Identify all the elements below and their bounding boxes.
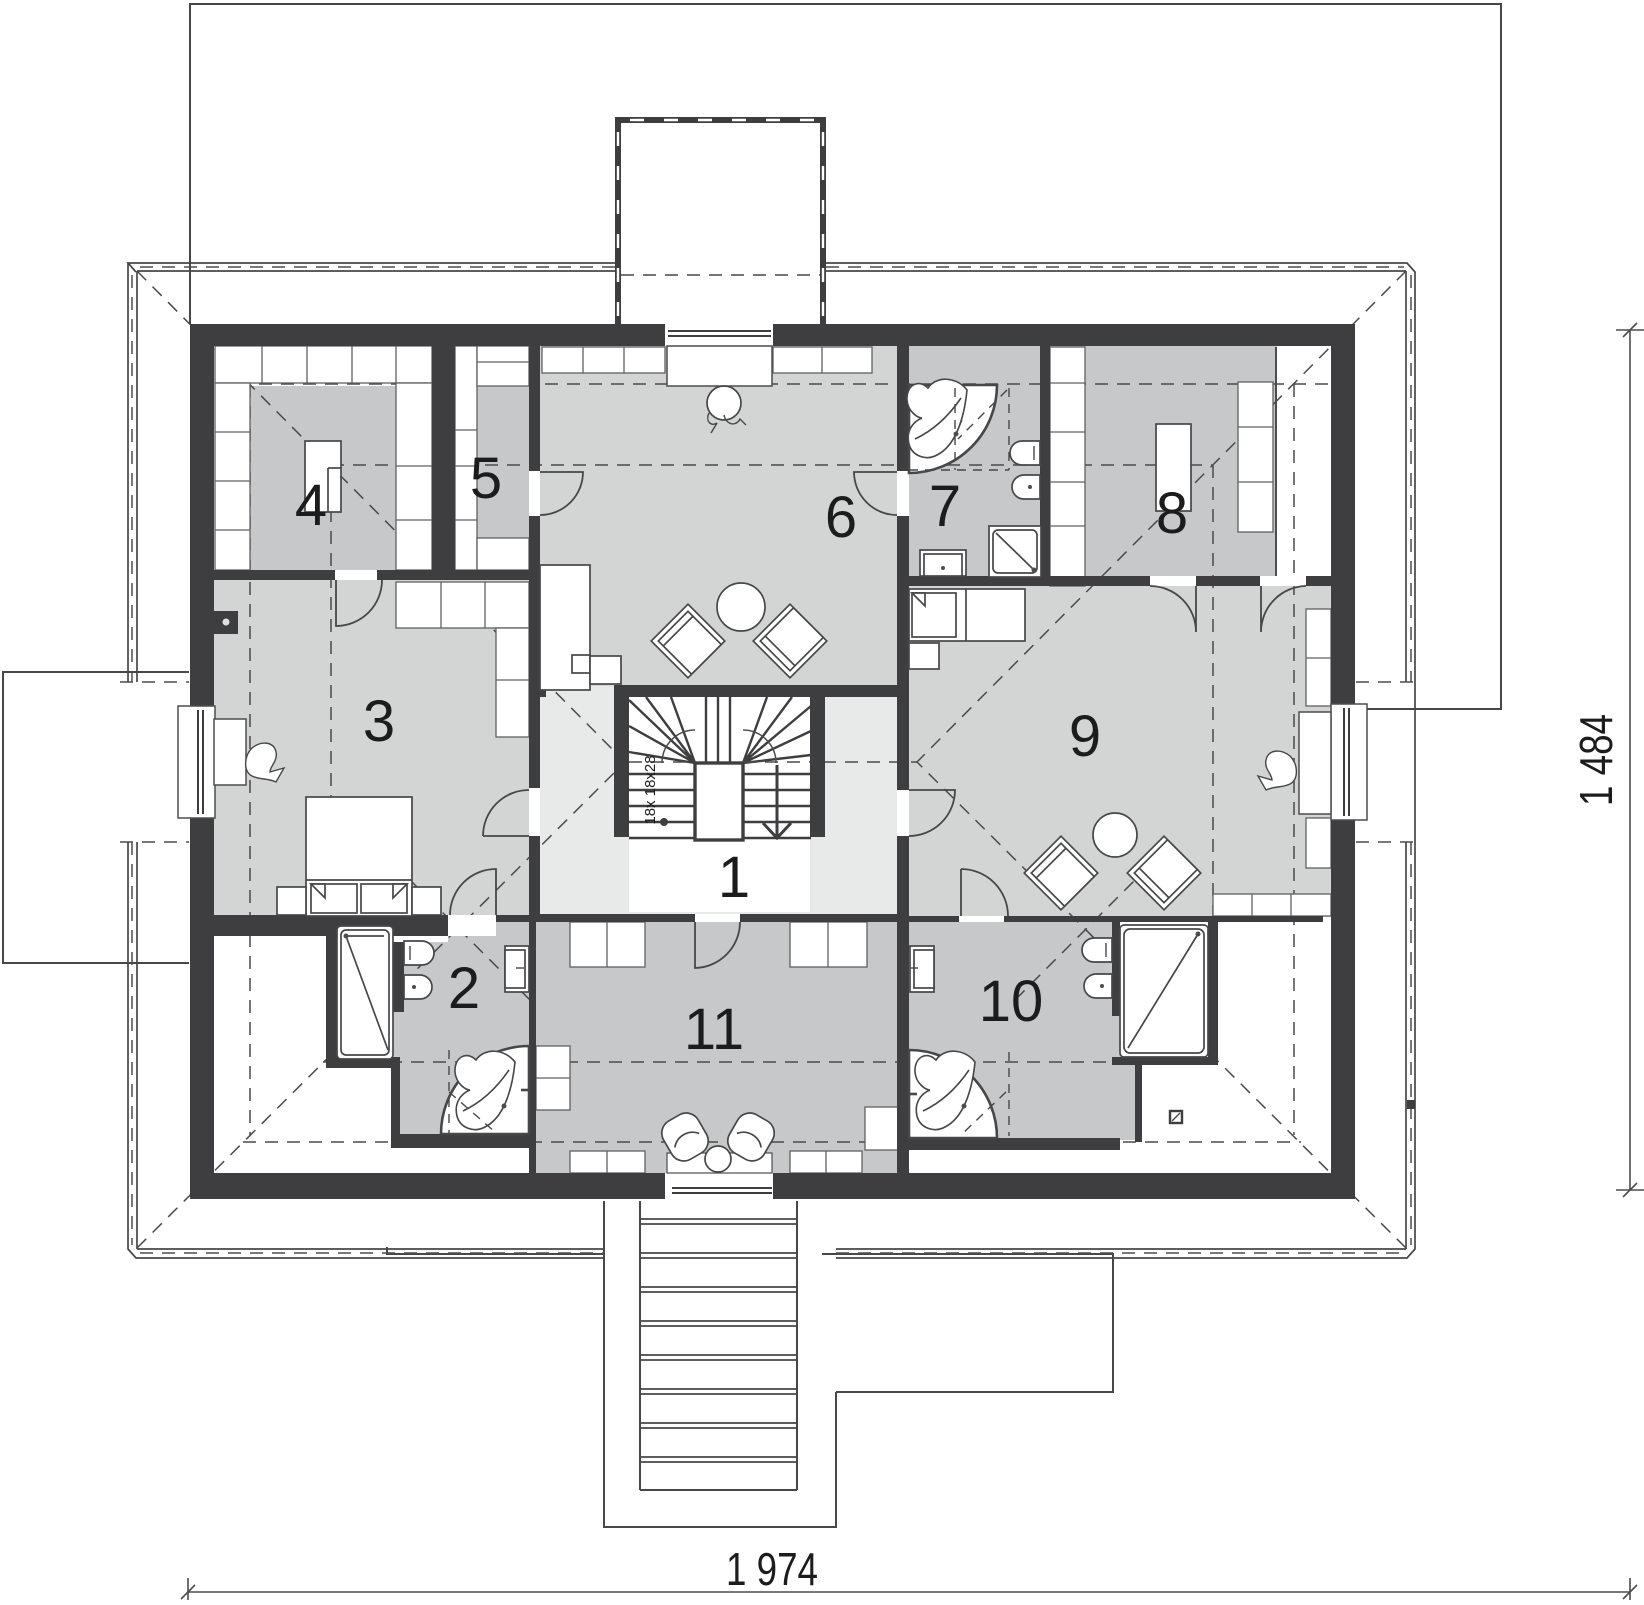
svg-text:7: 7 (929, 474, 961, 539)
svg-text:1: 1 (718, 845, 750, 910)
svg-text:9: 9 (1069, 704, 1101, 769)
svg-text:1 484: 1 484 (1570, 714, 1622, 806)
svg-text:4: 4 (295, 473, 327, 538)
svg-text:8: 8 (1156, 481, 1188, 546)
svg-text:5: 5 (470, 446, 502, 511)
svg-text:18x 18x28: 18x 18x28 (642, 755, 659, 824)
svg-text:1 974: 1 974 (726, 1543, 818, 1595)
svg-text:11: 11 (684, 997, 744, 1062)
svg-text:6: 6 (825, 485, 857, 550)
svg-text:3: 3 (363, 689, 395, 754)
svg-text:10: 10 (979, 969, 1044, 1034)
svg-text:2: 2 (448, 956, 480, 1021)
